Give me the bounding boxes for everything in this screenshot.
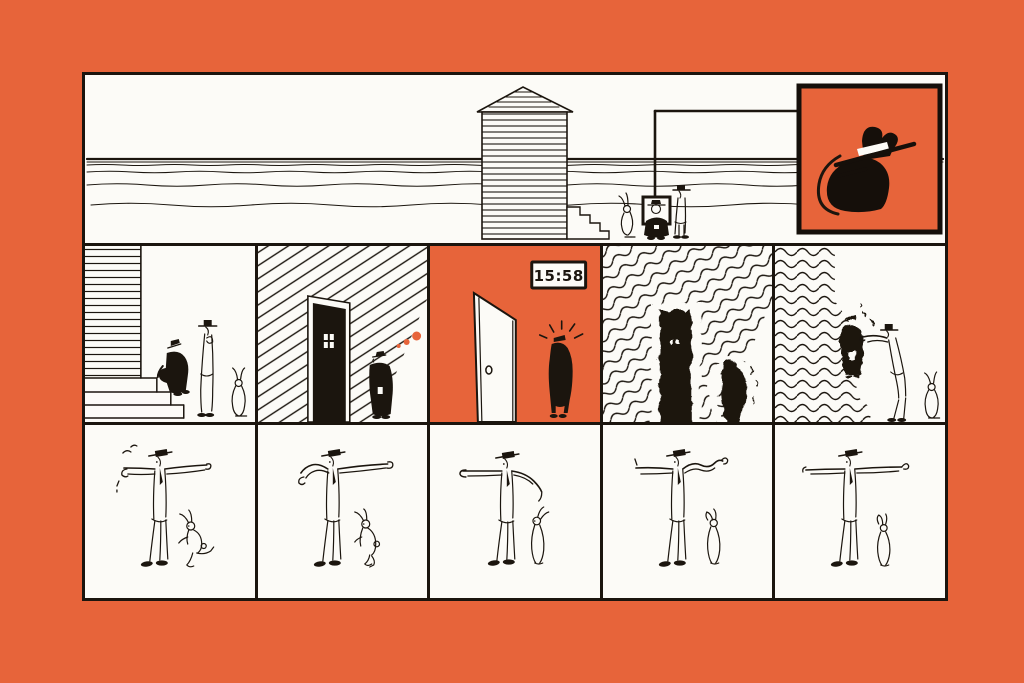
black-door <box>307 296 349 422</box>
hut-steps <box>567 207 609 239</box>
tall-man-arms-level <box>803 449 909 567</box>
panel-arms-out-pose-1 <box>85 425 255 598</box>
tall-man-one-arm-bent <box>298 449 392 567</box>
panel-wavering-wall-scene <box>772 246 945 422</box>
rabbit-slumping <box>706 509 720 564</box>
rabbit-leaping <box>179 510 214 567</box>
clock-sign: 15:58 <box>532 262 586 288</box>
tall-man-pointing-left <box>460 451 542 566</box>
tall-man-arm-waving <box>635 449 728 567</box>
wavering-black-door <box>654 306 694 422</box>
striped-beach-hut <box>477 87 609 239</box>
panel-beach-scene <box>85 75 945 243</box>
rabbit <box>619 193 635 237</box>
door-knob <box>486 366 492 374</box>
panel-wavering-door-scene <box>600 246 773 422</box>
clock-time: 15:58 <box>534 267 584 285</box>
panel-closed-black-door-scene <box>255 246 428 422</box>
tall-man-waiting <box>197 320 216 417</box>
short-man-startled <box>540 321 583 418</box>
comic-page: { "page": { "type": "comic-strip-page", … <box>0 0 1024 683</box>
rabbit <box>925 372 940 418</box>
rabbit-hopping <box>354 509 379 567</box>
inset-hat-and-rock-sign <box>799 86 940 232</box>
tall-man-arms-outstretched <box>117 445 211 567</box>
open-white-door <box>474 293 516 422</box>
panel-open-white-door-scene: 15:58 <box>427 246 600 422</box>
rabbit <box>232 368 247 416</box>
rabbit-dejected <box>878 514 891 566</box>
panel-arms-out-pose-4 <box>600 425 773 598</box>
panel-staircase-scene <box>85 246 255 422</box>
comic-frame: 15:58 <box>82 72 948 601</box>
short-man-trembling <box>840 302 872 378</box>
rabbit-standing <box>532 507 549 564</box>
tall-man <box>673 185 690 239</box>
row-middle: 15:58 <box>85 243 945 422</box>
short-man-climbing <box>158 339 190 396</box>
panel-arms-out-pose-2 <box>255 425 428 598</box>
row-bottom <box>85 422 945 598</box>
row-top <box>85 75 945 243</box>
panel-arms-out-pose-5 <box>772 425 945 598</box>
panel-arms-out-pose-3 <box>427 425 600 598</box>
staircase <box>85 246 184 418</box>
alarm-lines <box>540 321 583 338</box>
